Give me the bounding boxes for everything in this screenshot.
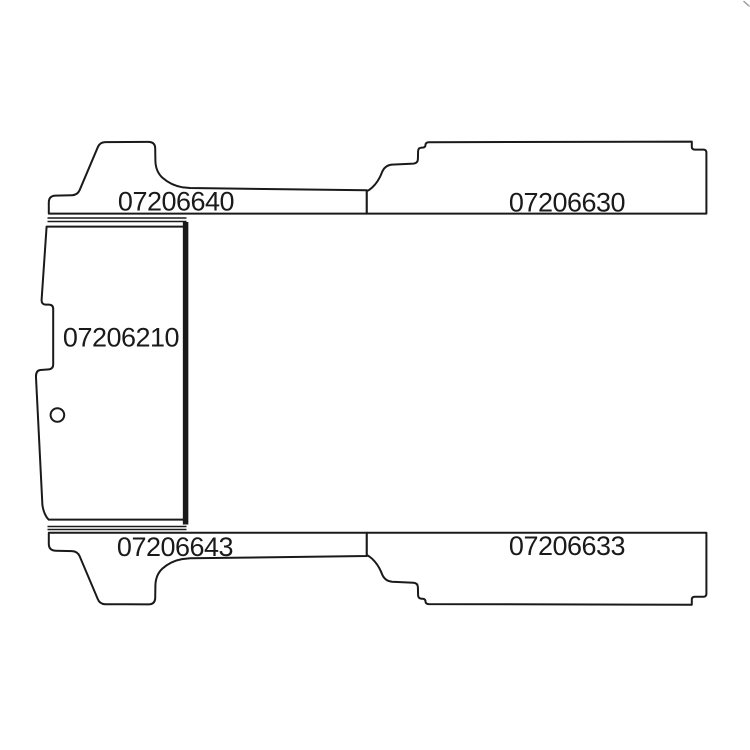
part-label-main-left-panel: 07206210	[63, 323, 179, 353]
part-outline-main-left-panel	[36, 227, 184, 520]
parts-diagram: 07206640 07206630 07206210 07206643 0720…	[0, 0, 750, 750]
part-label-bottom-left-strip: 07206643	[117, 532, 233, 562]
part-label-top-right-panel: 07206630	[509, 188, 625, 218]
stray-mark	[744, 2, 749, 7]
part-label-bottom-right-panel: 07206633	[509, 531, 625, 561]
fold-band-bottom	[48, 527, 187, 530]
part-label-top-left-strip: 07206640	[118, 187, 234, 217]
fold-band-top	[48, 218, 187, 222]
parts-diagram-canvas: 07206640 07206630 07206210 07206643 0720…	[0, 0, 750, 750]
